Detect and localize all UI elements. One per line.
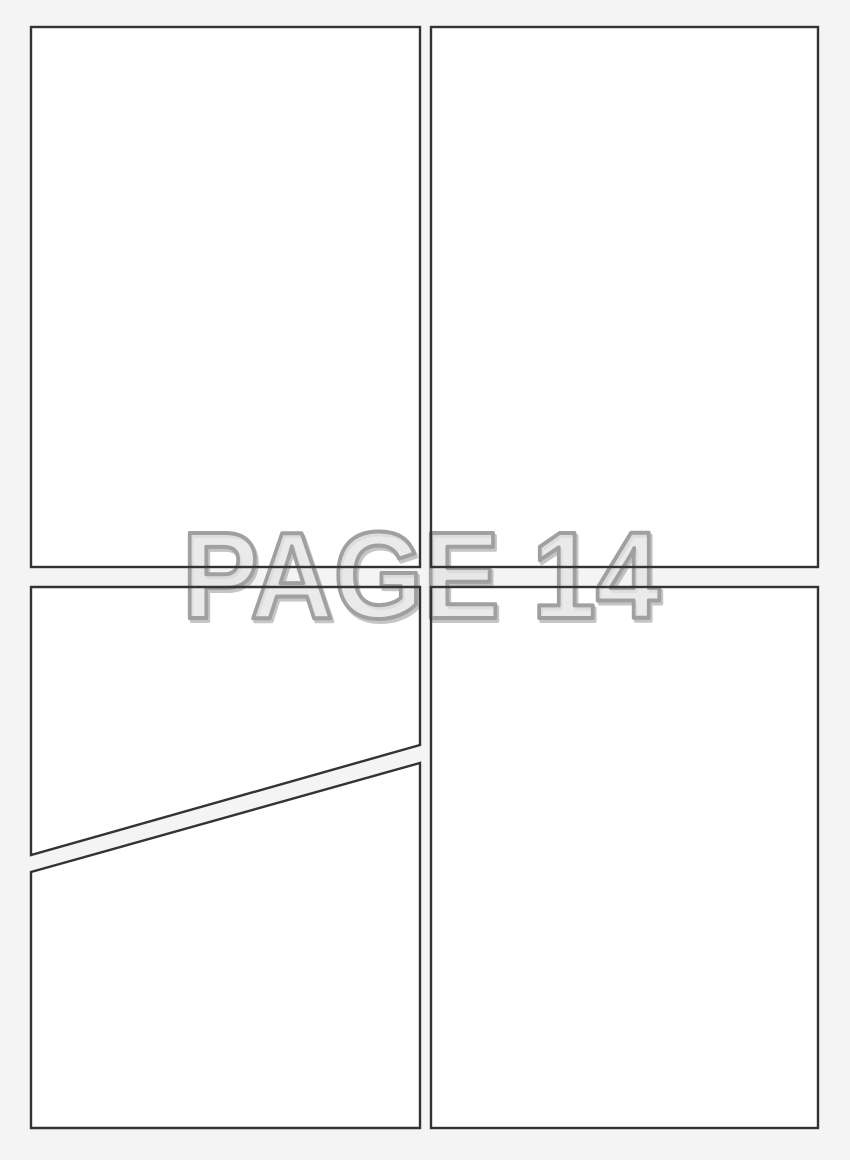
panel-bottom-right-fill (431, 587, 818, 1128)
panel-top-right-fill (431, 27, 818, 567)
panel-top-left-fill (31, 27, 420, 567)
comic-page-canvas: PAGE 14 (0, 0, 850, 1160)
